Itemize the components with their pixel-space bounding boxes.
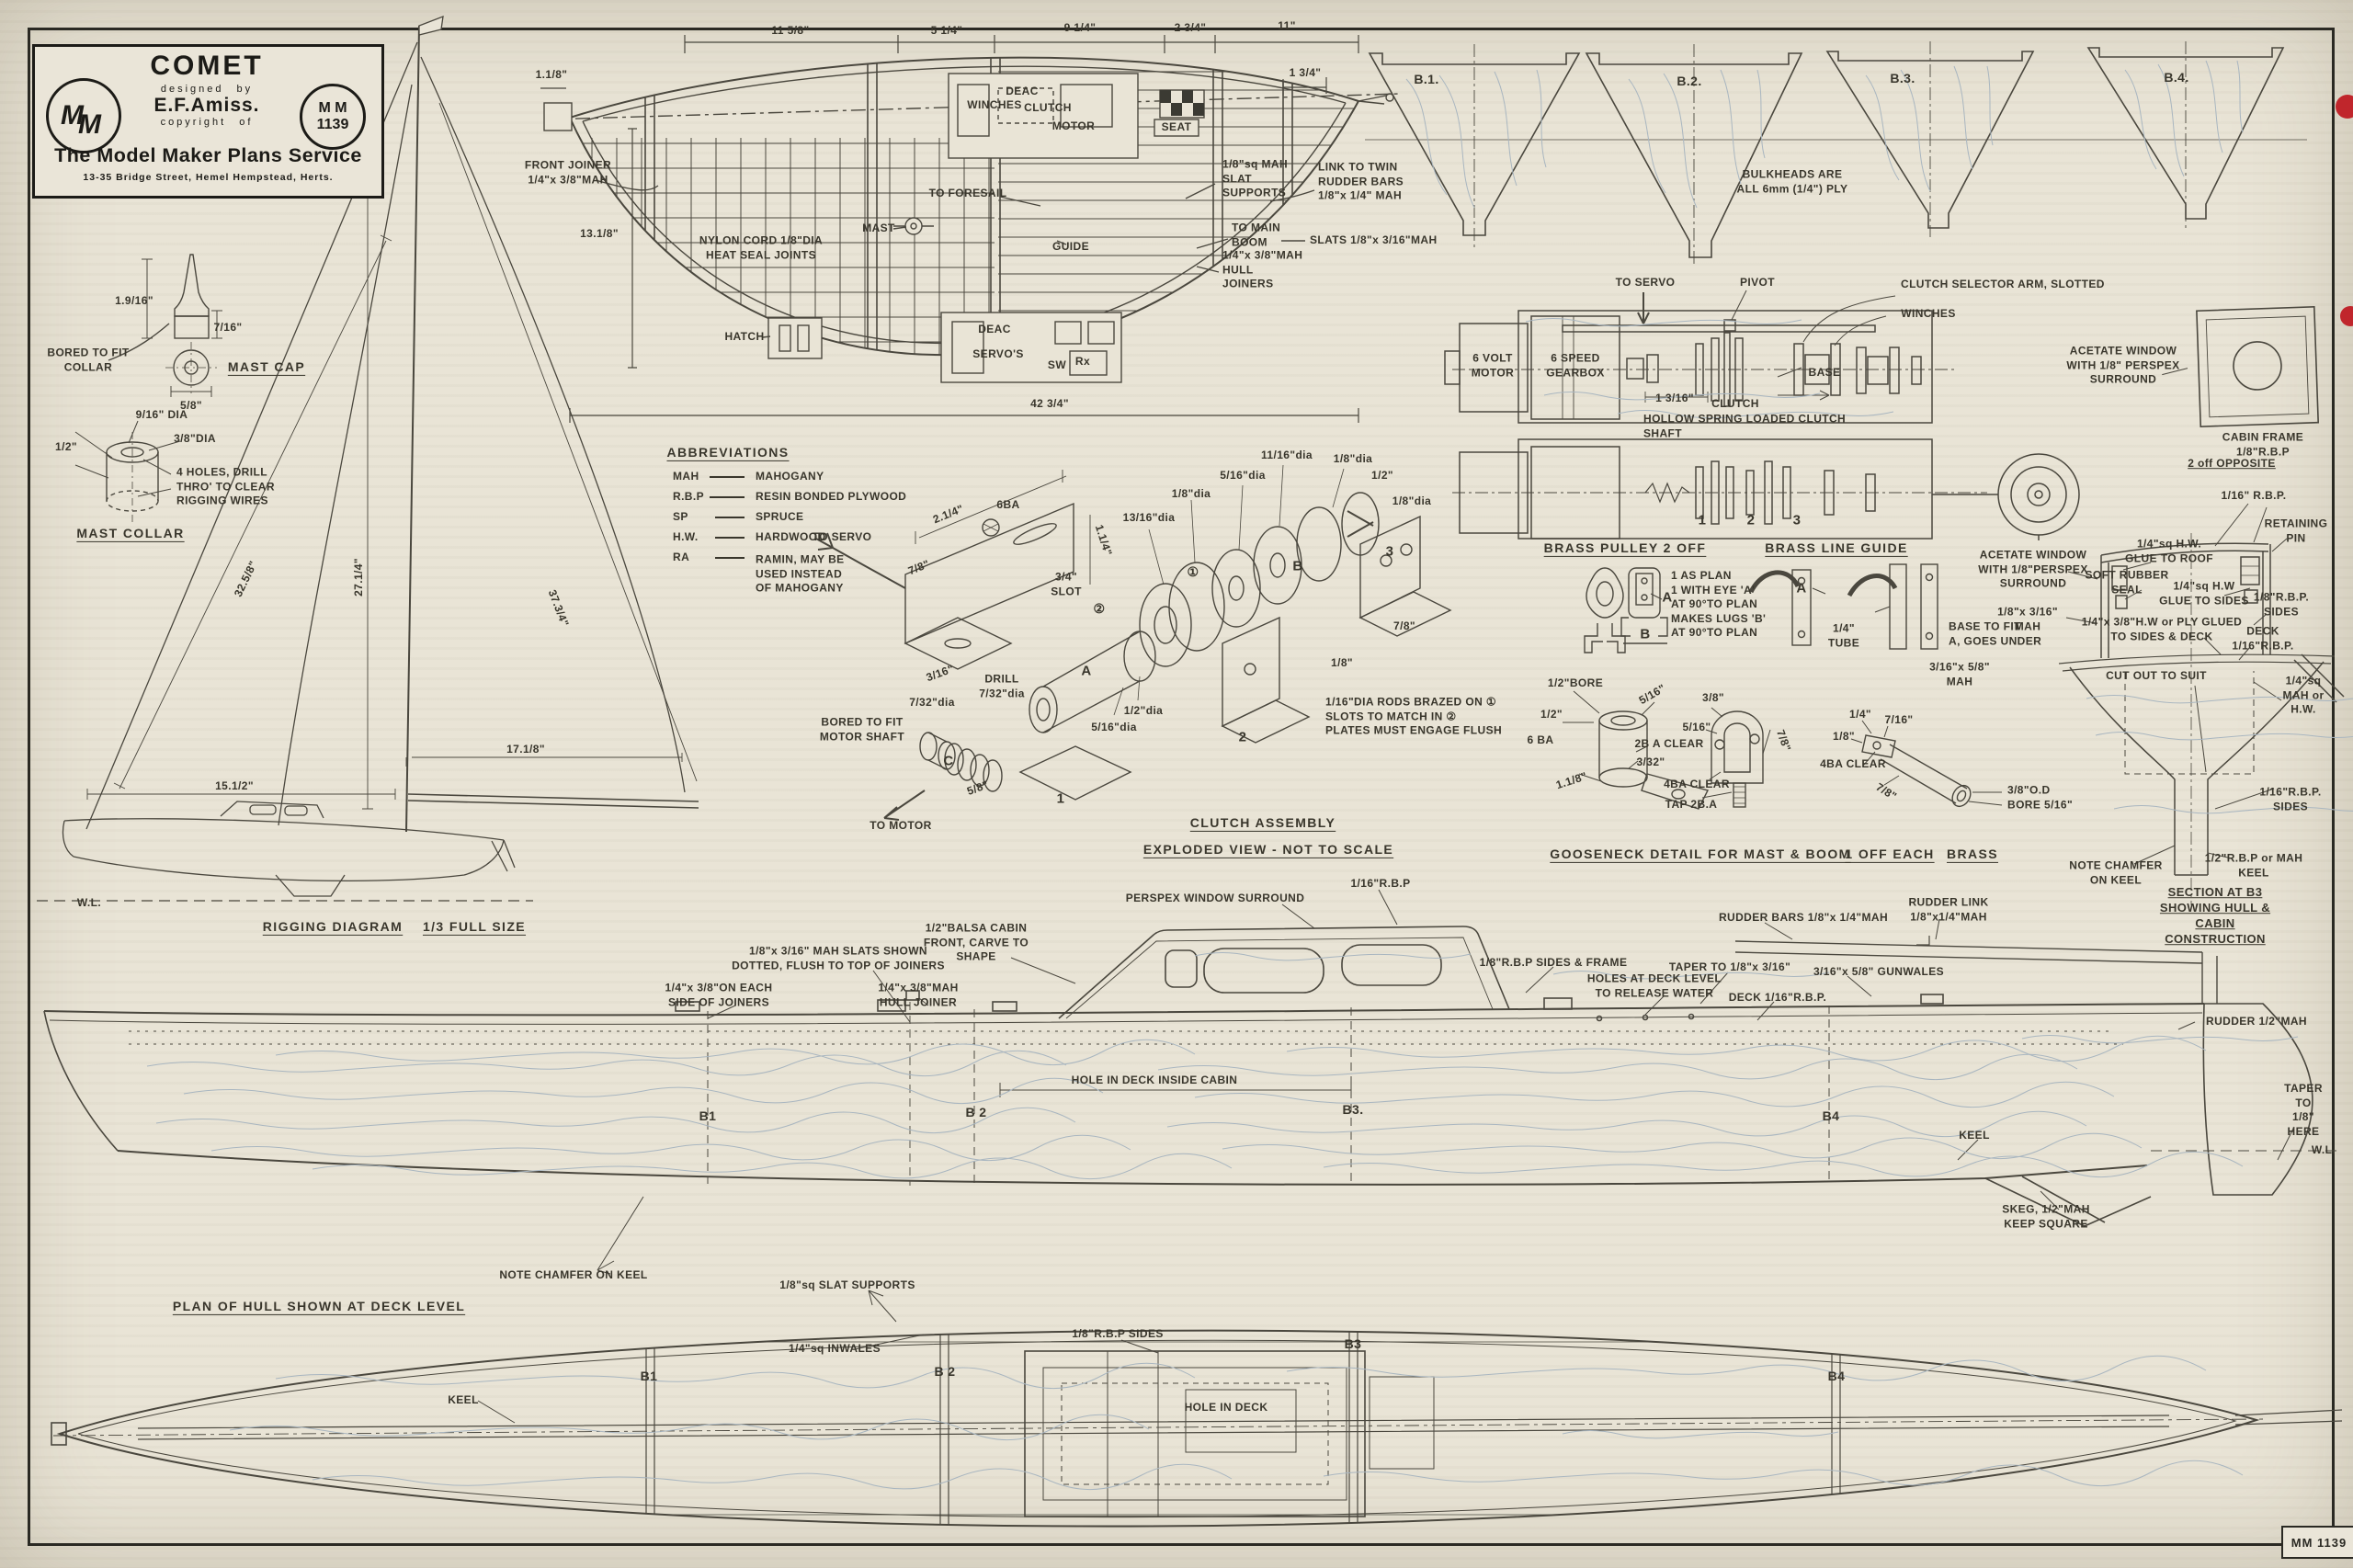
gooseneck-material: BRASS <box>1947 846 1998 862</box>
gunwales-label: 3/16"x 5/8" GUNWALES <box>1813 965 1944 980</box>
goose-dim: 1/8" <box>1833 730 1855 744</box>
guide-tube-label: 1/4" TUBE <box>1828 621 1859 650</box>
skeg-label: SKEG, 1/2"MAH KEEP SQUARE <box>2002 1202 2090 1231</box>
abbr-value: RESIN BONDED PLYWOOD <box>756 490 906 505</box>
clutch-to-servo-label: TO SERVO <box>813 530 872 545</box>
plan-title-label: PLAN OF HULL SHOWN AT DECK LEVEL <box>173 1298 465 1314</box>
clutch-dim: 1/8" <box>1331 656 1353 671</box>
deck-dim: 5 1/4" <box>931 24 963 39</box>
mastcap-width-dim: 7/16" <box>213 321 242 335</box>
guide-a-label: A <box>1796 579 1806 597</box>
goose-dim: 7/16" <box>1884 713 1913 728</box>
goose-clear-label: 4BA CLEAR <box>1820 757 1886 772</box>
collar-dia1-dim: 9/16" DIA <box>136 408 188 423</box>
goose-6ba-label: 6 BA <box>1528 733 1554 748</box>
sect-seal-label: SOFT RUBBER SEAL <box>2085 568 2168 597</box>
clutch-dia: 1/8"dia <box>1334 452 1373 467</box>
plan-b1-marker: B1 <box>641 1368 658 1384</box>
goose-dim: 1/2" <box>1540 708 1563 722</box>
collar-title: MAST COLLAR <box>76 525 184 541</box>
mastcap-title: MAST CAP <box>228 358 305 375</box>
clutch-drill-label: DRILL 7/32"dia <box>979 672 1025 700</box>
hull-perspex-label: PERSPEX WINDOW SURROUND <box>1126 892 1305 906</box>
link-rudder-label: LINK TO TWIN RUDDER BARS 1/8"x 1/4" MAH <box>1318 161 1404 204</box>
acetate-note: ACETATE WINDOW WITH 1/8" PERSPEX SURROUN… <box>2066 345 2179 388</box>
goose-tap-label: TAP 2B.A <box>1665 798 1718 812</box>
sect-cutout-label: CUT OUT TO SUIT <box>2106 669 2207 684</box>
acetate-window-art <box>2160 307 2318 428</box>
deck-dim: 11" <box>1278 19 1296 34</box>
deck-dim: 13.1/8" <box>580 227 619 242</box>
rudder-label: RUDDER 1/2"MAH <box>2206 1015 2307 1029</box>
clutch-circled-2: ② <box>1094 600 1106 617</box>
plan-number-badge: M M1139 <box>300 84 366 150</box>
plan-number-prefix: M M <box>318 100 347 117</box>
clutch-dia: 5/16"dia <box>1220 469 1266 483</box>
nylon-cord-label: NYLON CORD 1/8"DIA HEAT SEAL JOINTS <box>699 233 823 262</box>
slat-supports-label: 1/8"sq MAH SLAT SUPPORTS <box>1222 158 1288 201</box>
clutch-dim: 7/32"dia <box>909 696 955 710</box>
rigging-title: RIGGING DIAGRAM <box>263 918 403 935</box>
plan-b2-marker: B 2 <box>935 1363 956 1380</box>
sect-mahsq-label: 1/4"sq MAH or H.W. <box>2279 675 2328 718</box>
deck-level-plan-art <box>51 1290 2342 1549</box>
motor-base-label: BASE <box>1809 366 1841 381</box>
gearbox-label: 6 SPEED GEARBOX <box>1546 351 1604 380</box>
clutch-subtitle: EXPLODED VIEW - NOT TO SCALE <box>1143 841 1393 858</box>
pulley-note: 1 AS PLAN 1 WITH EYE 'A' AT 90°TO PLAN M… <box>1671 569 1766 641</box>
rx-label: Rx <box>1075 355 1090 369</box>
hull-wl-label: W.L. <box>2312 1143 2336 1158</box>
guide-label: GUIDE <box>1052 240 1089 255</box>
hull-deck-label: DECK 1/16"R.B.P. <box>1729 991 1827 1006</box>
clutch-dim: 1/2" <box>1371 469 1393 483</box>
rigging-scale: 1/3 FULL SIZE <box>423 918 526 935</box>
gooseneck-qty: 1 OFF EACH <box>1845 846 1934 862</box>
hole-in-deck-dim: HOLE IN DECK INSIDE CABIN <box>1072 1074 1238 1088</box>
motor-winches-label: WINCHES <box>1901 307 1955 322</box>
abbr-key: R.B.P <box>673 490 704 505</box>
clutch-bored-label: BORED TO FIT MOTOR SHAFT <box>820 715 904 744</box>
hull-joiners-label: 1/4"x 3/8"MAH HULL JOINERS <box>1222 249 1302 292</box>
goose-dim: 3/32" <box>1636 756 1665 770</box>
motor-n2: 2 <box>1747 511 1756 529</box>
plan-hole-label: HOLE IN DECK <box>1185 1401 1268 1415</box>
clutch-stand-1: 1 <box>1057 790 1065 808</box>
motor-dim: 1 3/16" <box>1655 392 1694 406</box>
deck-dim: 2 3/4" <box>1175 21 1207 36</box>
plan-b3-marker: B3 <box>1345 1335 1362 1352</box>
hull-side-joiners-label: 1/4"x 3/8"ON EACH SIDE OF JOINERS <box>665 981 773 1009</box>
clutch-dim: 7/8" <box>1393 619 1415 634</box>
goose-dim: 3/8" <box>1702 691 1724 706</box>
hull-b3-marker: B3. <box>1343 1101 1364 1118</box>
deck-dim: 11 5/8" <box>771 24 809 39</box>
abbr-key: SP <box>673 510 688 525</box>
clutch-slot-dim: 3/4" SLOT <box>1051 570 1082 598</box>
motor-label: MOTOR <box>1052 119 1095 134</box>
winches-label: WINCHES <box>967 98 1021 113</box>
abbr-value: RAMIN, MAY BE USED INSTEAD OF MAHOGANY <box>756 553 845 597</box>
pulley-b-label: B <box>1640 625 1650 643</box>
sect-rbp-label: 1/16" R.B.P. <box>2222 489 2287 504</box>
servos-label: SERVO'S <box>972 347 1023 362</box>
plan-slat-supports-label: 1/8"sq SLAT SUPPORTS <box>779 1278 915 1293</box>
registration-marks <box>2336 95 2353 326</box>
sect-rbp-sides-label: 1/8"R.B.P. SIDES <box>2254 590 2309 619</box>
sect-deck-label: DECK 1/16"R.B.P. <box>2232 624 2293 653</box>
hull-joiner-label: 1/4"x 3/8"MAH HULL JOINER <box>878 981 958 1009</box>
collar-dia2-dim: 3/8"DIA <box>174 432 216 447</box>
sect-mah-label: 1/8"x 3/16" MAH <box>1997 605 2058 633</box>
designer-name: E.F.Amiss. <box>119 95 294 117</box>
holes-deck-label: HOLES AT DECK LEVEL TO RELEASE WATER <box>1587 971 1722 1000</box>
motor-n3: 3 <box>1793 511 1802 529</box>
clutch-dia: 5/16"dia <box>1091 721 1137 735</box>
deac-label: DEAC <box>1006 85 1039 99</box>
taper-here-label: TAPER TO 1/8" HERE <box>2279 1082 2328 1139</box>
collar-height-dim: 1/2" <box>55 440 77 455</box>
clutch-label: CLUTCH <box>1024 101 1072 116</box>
sw-label: SW <box>1048 358 1066 373</box>
bulkheads-note: BULKHEADS ARE ALL 6mm (1/4") PLY <box>1737 167 1848 196</box>
plan-b4-marker: B4 <box>1828 1368 1846 1384</box>
hull-rbp-label: 1/16"R.B.P <box>1350 877 1410 892</box>
hull-chamfer-label: NOTE CHAMFER ON KEEL <box>499 1268 647 1283</box>
clutch-rods-note: 1/16"DIA RODS BRAZED ON ① SLOTS TO MATCH… <box>1325 696 1502 739</box>
cabin-frame-label: CABIN FRAME 1/8"R.B.P <box>2218 430 2308 459</box>
sect-chamfer-label: NOTE CHAMFER ON KEEL <box>2069 858 2162 887</box>
plan-keel-label: KEEL <box>448 1393 479 1408</box>
sect-keel-label: 1/2"R.B.P or MAH KEEL <box>2204 851 2303 880</box>
bulkhead-b4-label: B.4. <box>2164 69 2188 85</box>
abbr-value: SPRUCE <box>756 510 803 525</box>
goose-od-dim: 3/8"O.D BORE 5/16" <box>2007 783 2073 812</box>
deck-dim: 1.1/8" <box>536 68 568 83</box>
sect-retaining-label: RETAINING PIN <box>2265 517 2328 545</box>
line-art <box>0 0 2353 1568</box>
hull-b4-marker: B4 <box>1823 1108 1840 1124</box>
publisher-address: 13-35 Bridge Street, Hemel Hempstead, He… <box>35 172 381 183</box>
mm-logo: MM <box>46 78 121 153</box>
bulkhead-b2-label: B.2. <box>1677 73 1701 89</box>
deck-dim: 9 1/4" <box>1064 21 1097 36</box>
goose-dim: 5/16" <box>1682 721 1711 735</box>
abbr-value: MAHOGANY <box>756 470 824 484</box>
sect-acetate-label: ACETATE WINDOW WITH 1/8"PERSPEX SURROUND <box>1978 549 2087 592</box>
abbr-key: H.W. <box>673 530 699 545</box>
rudder-link-label: RUDDER LINK 1/8"x1/4"MAH <box>1908 895 1988 924</box>
luff-dim: 27.1/4" <box>352 558 367 597</box>
hull-b1-marker: B1 <box>699 1108 717 1124</box>
sect-glue-sides-label: 1/4"sq H.W GLUE TO SIDES <box>2159 579 2249 608</box>
sect-hw-ply-label: 1/4"x 3/8"H.W or PLY GLUED TO SIDES & DE… <box>2082 615 2243 643</box>
mastcap-height-dim: 1.9/16" <box>115 294 153 309</box>
plan-rbp-sides-label: 1/8"R.B.P SIDES <box>1072 1327 1164 1342</box>
clutch-dia: 11/16"dia <box>1261 449 1313 463</box>
clutch-dia: 13/16"dia <box>1123 511 1176 526</box>
cabin-frame-qty: 2 off OPPOSITE <box>2188 457 2276 472</box>
pulley-a-label: A <box>1662 588 1672 607</box>
title-block: MM COMET designed by E.F.Amiss. copyrigh… <box>32 44 384 199</box>
clutch-6ba-label: 6BA <box>996 498 1019 513</box>
logo-letter: M <box>78 109 101 141</box>
plan-title: COMET <box>119 51 294 82</box>
foot-dim: 15.1/2" <box>215 779 254 794</box>
motor-label: 6 VOLT MOTOR <box>1472 351 1514 380</box>
motor-n1: 1 <box>1699 511 1707 529</box>
clutch-dia: 1/8"dia <box>1392 494 1432 509</box>
deck-dim-overall: 42 3/4" <box>1030 397 1069 412</box>
rudder-bars-label: RUDDER BARS 1/8"x 1/4"MAH <box>1719 911 1888 926</box>
to-foresail-label: TO FORESAIL <box>929 187 1007 201</box>
front-joiner-label: FRONT JOINER 1/4"x 3/8"MAH <box>525 158 611 187</box>
bulkhead-b3-label: B.3. <box>1890 70 1915 86</box>
clutch-stand-2: 2 <box>1239 728 1247 746</box>
clutch-part-a-label: A <box>1081 662 1091 680</box>
deac2-label: DEAC <box>978 323 1011 337</box>
clutch-stand-3: 3 <box>1386 542 1394 561</box>
publisher-name: The Model Maker Plans Service <box>35 144 381 167</box>
goose-clear-label: 4BA CLEAR <box>1664 778 1730 792</box>
plan-number: 1139 <box>317 117 349 133</box>
motor-to-servo-label: TO SERVO <box>1616 276 1676 290</box>
section-title: SECTION AT B3 SHOWING HULL & CABIN CONST… <box>2146 885 2284 948</box>
gooseneck-title: GOOSENECK DETAIL FOR MAST & BOOM <box>1550 846 1850 862</box>
clutch-circled-1: ① <box>1188 563 1199 580</box>
hull-rbp-frame-label: 1/8"R.B.P SIDES & FRAME <box>1480 956 1628 971</box>
hull-keel-label: KEEL <box>1959 1129 1990 1143</box>
hull-b2-marker: B 2 <box>966 1104 987 1120</box>
goose-mah-label: 3/16"x 5/8" MAH <box>1929 660 1990 688</box>
abbr-title: ABBREVIATIONS <box>666 444 789 460</box>
mast-label: MAST <box>862 222 895 236</box>
plan-inwales-label: 1/4"sq INWALES <box>789 1342 881 1357</box>
motor-selector-label: CLUTCH SELECTOR ARM, SLOTTED <box>1901 278 2105 292</box>
clutch-dia: 1/2"dia <box>1124 704 1164 719</box>
sect-sides-label: 1/16"R.B.P. SIDES <box>2259 785 2321 813</box>
clutch-to-motor-label: TO MOTOR <box>870 819 931 834</box>
goose-clear-label: 2B A CLEAR <box>1634 737 1703 752</box>
abbr-key: MAH <box>673 470 699 484</box>
deck-dim: 1 3/4" <box>1290 66 1322 81</box>
boom-dim: 17.1/8" <box>506 743 545 757</box>
copyright-label: copyright of <box>119 117 294 128</box>
goose-dim: 1/4" <box>1849 708 1871 722</box>
hatch-label: HATCH <box>724 330 764 345</box>
collar-holes-note: 4 HOLES, DRILL THRO' TO CLEAR RIGGING WI… <box>176 466 275 509</box>
clutch-part-b-label: B <box>1292 557 1302 575</box>
abbr-key: RA <box>673 551 689 565</box>
sect-glue-roof-label: 1/4"sq H.W. GLUE TO ROOF <box>2125 537 2213 565</box>
seat-label: SEAT <box>1162 120 1192 135</box>
hull-slats-label: 1/8"x 3/16" MAH SLATS SHOWN DOTTED, FLUS… <box>732 944 945 972</box>
clutch-title: CLUTCH ASSEMBLY <box>1190 814 1336 831</box>
to-main-boom-label: TO MAIN BOOM <box>1232 221 1280 249</box>
motor-clutch-label: CLUTCH <box>1711 397 1759 412</box>
clutch-part-c-label: C <box>943 752 953 770</box>
mastcap-bored-label: BORED TO FIT COLLAR <box>47 346 129 374</box>
pulley-title: BRASS PULLEY 2 OFF <box>1544 540 1707 556</box>
guide-title: BRASS LINE GUIDE <box>1765 540 1907 556</box>
slats-label: SLATS 1/8"x 3/16"MAH <box>1310 233 1438 248</box>
clutch-dia: 1/8"dia <box>1172 487 1211 502</box>
motor-pivot-label: PIVOT <box>1740 276 1775 290</box>
goose-bore-dim: 1/2"BORE <box>1548 676 1603 691</box>
hollow-shaft-label: HOLLOW SPRING LOADED CLUTCH SHAFT <box>1643 412 1846 440</box>
waterline-label: W.L. <box>77 896 101 911</box>
designed-by-label: designed by <box>119 84 294 95</box>
bulkhead-b1-label: B.1. <box>1414 71 1438 87</box>
footer-plan-number: MM 1139 <box>2281 1526 2353 1559</box>
